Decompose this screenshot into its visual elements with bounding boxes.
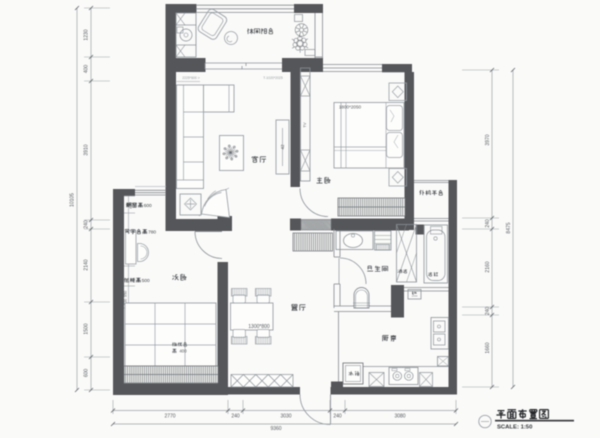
- svg-text:240: 240: [333, 414, 342, 420]
- svg-text:1300*800: 1300*800: [248, 324, 270, 330]
- svg-text:240: 240: [485, 307, 491, 316]
- svg-text:1800*2050: 1800*2050: [339, 105, 362, 110]
- svg-text:400: 400: [179, 349, 187, 354]
- svg-text:2160: 2160: [485, 261, 491, 272]
- svg-text:240: 240: [485, 219, 491, 228]
- svg-text:2140: 2140: [84, 259, 90, 270]
- svg-text:SCALE: 1:50: SCALE: 1:50: [497, 425, 533, 431]
- svg-text:780: 780: [148, 230, 156, 236]
- svg-text:2225*600 >: 2225*600 >: [182, 76, 199, 80]
- svg-text:240: 240: [231, 414, 240, 420]
- svg-text:T-1020*2025: T-1020*2025: [263, 76, 283, 80]
- svg-text:9360: 9360: [270, 426, 281, 432]
- svg-text:600: 600: [144, 203, 152, 209]
- svg-text:1660: 1660: [485, 342, 491, 353]
- svg-text:1500: 1500: [84, 323, 90, 334]
- svg-text:3030: 3030: [280, 414, 291, 420]
- svg-text:2770: 2770: [164, 414, 175, 420]
- svg-text:240: 240: [84, 220, 90, 229]
- svg-text:400: 400: [84, 65, 90, 74]
- svg-text:600: 600: [84, 369, 90, 378]
- svg-text:1230: 1230: [84, 29, 90, 40]
- svg-text:3080: 3080: [394, 414, 405, 420]
- svg-text:500: 500: [142, 278, 150, 284]
- svg-text:3910: 3910: [84, 144, 90, 155]
- svg-text:950: 950: [124, 291, 128, 297]
- svg-text:TV: TV: [302, 122, 307, 127]
- svg-text:42: 42: [280, 144, 285, 150]
- svg-text:10105: 10105: [70, 193, 76, 207]
- svg-text:8475: 8475: [506, 222, 512, 233]
- svg-text:3970: 3970: [485, 134, 491, 145]
